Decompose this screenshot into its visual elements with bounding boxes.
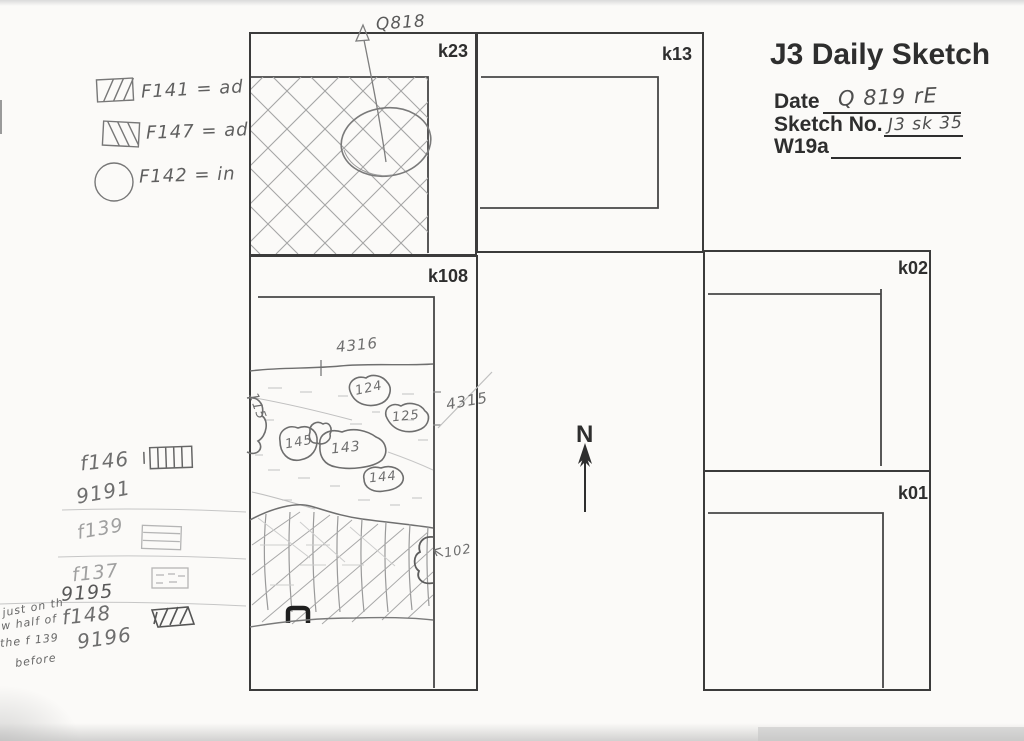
level-4316-label: 4316 xyxy=(335,336,379,355)
scanned-daily-sketch-page: J3 Daily Sketch Date Q 819 rE Sketch No.… xyxy=(0,0,1024,741)
circle-swatch xyxy=(95,163,133,201)
square-label-k01: k01 xyxy=(892,484,928,502)
forward-diagonal-hatch-swatch xyxy=(96,78,134,102)
square-k108-outline xyxy=(250,256,477,690)
dashed-lines-swatch xyxy=(152,568,188,588)
side-note-f148: f148 xyxy=(61,602,112,627)
sketch-graphics xyxy=(0,0,1024,741)
stone-143-label: 143 xyxy=(330,439,361,456)
feature-102-arrow xyxy=(434,548,443,556)
q818-label: Q818 xyxy=(375,13,426,33)
north-label: N xyxy=(576,423,593,447)
diagonal-lines-swatch xyxy=(152,607,194,627)
stones xyxy=(247,375,428,491)
horizontal-lines-swatch xyxy=(142,525,182,549)
k108-hatch-fill xyxy=(252,512,433,624)
square-k23-outline xyxy=(250,33,476,255)
vertical-lines-swatch xyxy=(144,446,193,469)
legend-label-f142: F142 = in xyxy=(139,165,236,186)
square-label-k13: k13 xyxy=(656,45,692,63)
stone-125-label: 125 xyxy=(391,409,420,425)
side-note-f146: f146 xyxy=(79,448,130,473)
legend-label-f147: F147 = ad xyxy=(146,121,249,143)
square-k13-outline xyxy=(477,33,703,252)
page-title: J3 Daily Sketch xyxy=(770,40,975,70)
stone-144-label: 144 xyxy=(368,470,397,486)
trench-k108 xyxy=(258,297,434,688)
date-field-value: Q 819 rE xyxy=(838,85,939,109)
trench-k23 xyxy=(251,77,428,253)
trench-k01 xyxy=(708,513,883,688)
date-field-label: Date xyxy=(774,91,820,112)
legend-swatches xyxy=(95,78,140,201)
square-label-k23: k23 xyxy=(432,42,468,60)
sketch-no-field-value: J3 sk 35 xyxy=(888,115,964,135)
square-label-k108: k108 xyxy=(420,267,468,285)
square-k02-outline xyxy=(704,251,930,471)
trench-k02 xyxy=(708,289,881,466)
square-label-k02: k02 xyxy=(892,259,928,277)
w19a-field-label: W19a xyxy=(774,136,829,157)
feature-102-outline xyxy=(415,537,433,583)
trench-outlines xyxy=(251,77,883,688)
north-arrow xyxy=(578,443,592,512)
trench-k13 xyxy=(480,77,658,208)
square-k01-outline xyxy=(704,471,930,690)
sketch-no-field-label: Sketch No. xyxy=(774,114,883,135)
back-diagonal-hatch-swatch xyxy=(102,121,139,147)
